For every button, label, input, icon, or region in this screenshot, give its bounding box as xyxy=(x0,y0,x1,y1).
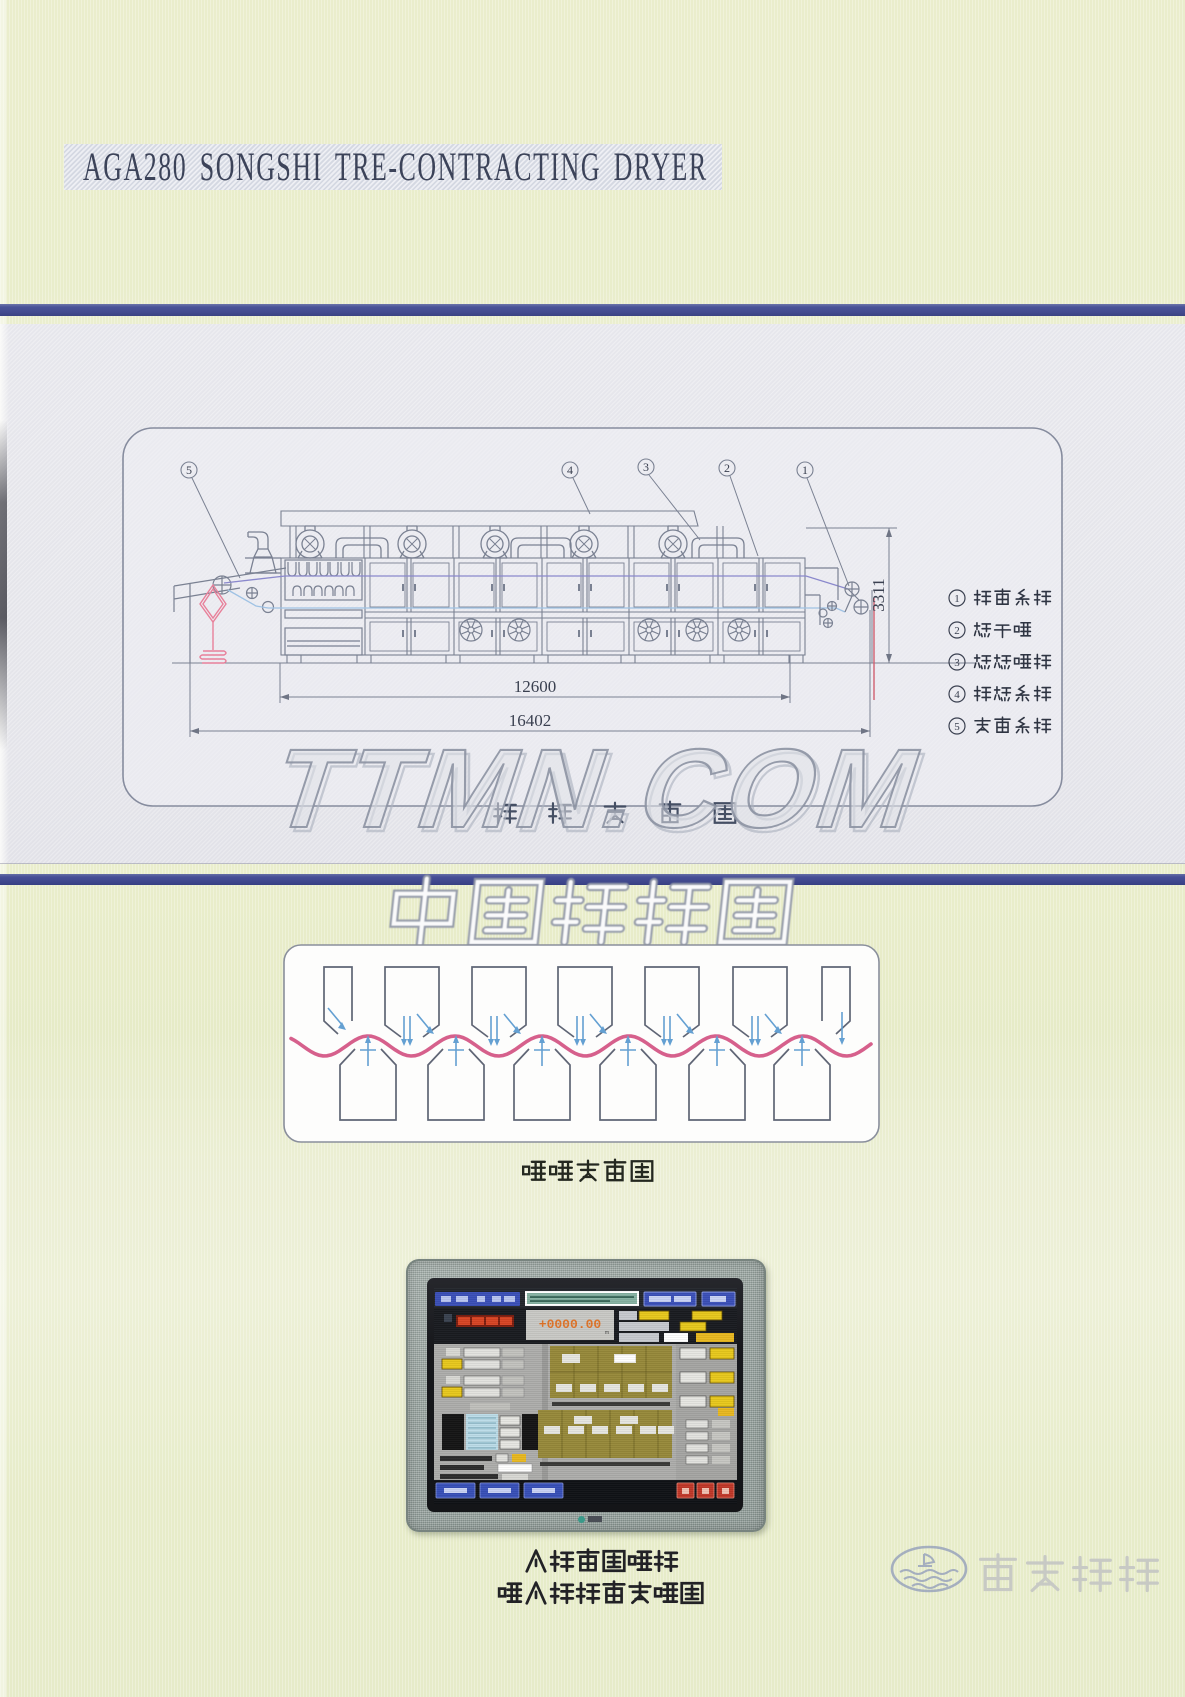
svg-text:3: 3 xyxy=(954,657,960,669)
svg-text:1: 1 xyxy=(802,463,808,477)
svg-text:3: 3 xyxy=(643,460,649,474)
svg-text:1: 1 xyxy=(954,593,960,605)
svg-text:12600: 12600 xyxy=(514,677,557,696)
svg-text:4: 4 xyxy=(567,463,573,477)
svg-text:3311: 3311 xyxy=(869,578,888,611)
svg-text:5: 5 xyxy=(186,463,192,477)
svg-text:2: 2 xyxy=(954,625,960,637)
svg-text:2: 2 xyxy=(724,461,730,475)
svg-text:TTMN.COM: TTMN.COM xyxy=(256,727,940,852)
